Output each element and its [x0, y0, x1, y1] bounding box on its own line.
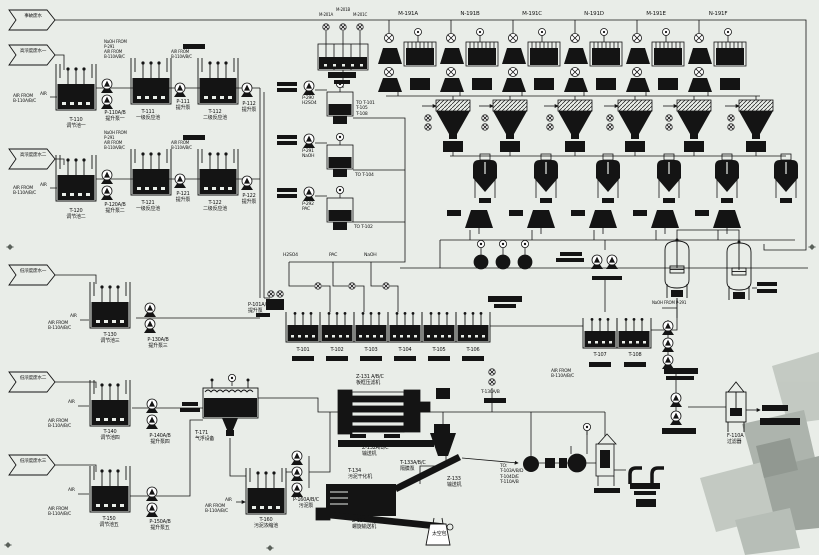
tank-t108-label: T-108 — [629, 353, 642, 359]
pump-p292-label: P-292 PAC — [302, 202, 314, 213]
pump-p160-label: P-160A/B/C 污泥泵 — [293, 498, 319, 510]
tank-t120-label: T-120 调节池二 — [66, 209, 85, 221]
pump-p291-label: P-291 NaOH — [302, 149, 314, 160]
mixer-m201b-label: M-201B — [336, 8, 350, 13]
pump-p122-label: P-122 提升泵 — [242, 194, 256, 206]
dest-t101-label: TO T-101 T-105 T-108 — [356, 101, 375, 117]
air-from-note: AIR FROM B-110A/B/C — [551, 369, 574, 379]
pfd-canvas: 事故废水高浓度废水一高浓度废水二低浓度废水一低浓度废水二低浓度废水三M-191A… — [0, 0, 819, 555]
mixer-m201c-label: M-201C — [353, 13, 367, 18]
tank-t112-label: T-112 二级反应池 — [203, 110, 227, 122]
chem-header-naoh: NaOH — [364, 253, 377, 258]
flag-low-conc-1: 低浓度废水一 — [20, 269, 46, 274]
tank-t101-label: T-101 — [297, 348, 310, 354]
dest-t102-label: TO T-102 — [354, 225, 373, 230]
pump-p150-label: P-150A/B 提升泵五 — [149, 520, 170, 532]
tank-t140-label: T-140 调节池四 — [100, 430, 119, 442]
tank-t102-label: T-102 — [331, 348, 344, 354]
flag-high-conc-2: 高浓度废水二 — [20, 153, 46, 158]
conveyor-z133-label: Z-133 输送机 — [447, 477, 461, 489]
recycle-dest-label: TO: T-103A/B/D T-104D/E T-110A/B — [500, 464, 523, 485]
dest-t104-label: TO T-104 — [355, 173, 374, 178]
tank-t103-label: T-103 — [365, 348, 378, 354]
conveyor-z134-label: Z-134 螺旋输送机 — [352, 519, 376, 531]
air-from-note: AIR FROM B-110A/B/C — [48, 321, 71, 331]
naoh-from-note: NaOH FROM P-291 — [652, 301, 686, 306]
air-tag: AIR — [68, 488, 75, 493]
unit-n191b-label: N-191B — [460, 11, 479, 17]
naoh-from-note: NaOH FROM P-291 — [104, 40, 127, 49]
dryer-t134-label: T-134 污泥干化机 — [348, 469, 372, 481]
flag-accident-wastewater: 事故废水 — [24, 14, 42, 19]
unit-m191e-label: M-191E — [646, 11, 666, 17]
flag-low-conc-2: 低浓度废水二 — [20, 376, 46, 381]
pump-p121-label: P-121 提升泵 — [176, 192, 190, 204]
air-from-note: AIR FROM B-110A/B/C — [48, 419, 71, 429]
tank-t104-label: T-104 — [399, 348, 412, 354]
pump-p111-label: P-111 提升泵 — [176, 100, 190, 112]
chem-header-h2so4: H2SO4 — [283, 253, 298, 258]
air-tag: AIR — [68, 400, 75, 405]
pump-p130-label: P-130A/B 提升泵三 — [147, 338, 168, 350]
pump-p140-label: P-140A/B 提升泵四 — [149, 434, 170, 446]
air-tag: AIR — [40, 92, 47, 97]
naoh-from-note: NaOH FROM P-291 — [104, 131, 127, 140]
pump-t130ab-label: T-130A/B — [481, 390, 500, 395]
air-from-note: AIR FROM B-110A/B/C — [171, 141, 192, 150]
tank-t106-label: T-106 — [467, 348, 480, 354]
unit-m191a-label: M-191A — [398, 11, 418, 17]
unit-n191d-label: N-191D — [584, 11, 604, 17]
pump-p120-label: P-120A/B 提升泵二 — [104, 203, 125, 215]
filter-f110a-label: F-110A 过滤器 — [727, 434, 743, 446]
air-tag: AIR — [40, 183, 47, 188]
pump-p101-label: P-101A/B 提升泵 — [248, 303, 269, 315]
unit-m191c-label: M-191C — [522, 11, 542, 17]
tank-t107-label: T-107 — [594, 353, 607, 359]
air-from-note: AIR FROM B-110A/B/C — [13, 94, 36, 104]
pump-p290-label: P-290 H2SO4 — [302, 96, 317, 107]
air-from-note: AIR FROM B-110A/B/C — [104, 141, 125, 150]
press-z131-label: Z-131 A/B/C 板框压滤机 — [356, 375, 384, 387]
flag-low-conc-3: 低浓度废水三 — [20, 459, 46, 464]
air-from-note: AIR FROM B-110A/B/C — [205, 504, 228, 514]
mixer-m201a-label: M-201A — [319, 13, 333, 18]
air-from-note: AIR FROM B-110A/B/C — [13, 186, 36, 196]
air-tag: AIR — [70, 314, 77, 319]
tank-t121-label: T-121 一级反应池 — [136, 201, 160, 213]
air-from-note: AIR FROM B-110A/B/C — [104, 50, 125, 59]
tank-t130-label: T-130 调节池三 — [100, 333, 119, 345]
labels-layer: 事故废水高浓度废水一高浓度废水二低浓度废水一低浓度废水二低浓度废水三M-191A… — [0, 0, 819, 555]
daf-t171-label: T-171 气浮设备 — [195, 431, 214, 443]
tank-t150-label: T-150 调节池五 — [99, 517, 118, 529]
air-from-note: AIR FROM B-110A/B/C — [171, 50, 192, 59]
bulk-bag-label: 太空包 — [432, 532, 446, 538]
tank-t110-label: T-110 调节池一 — [66, 118, 85, 130]
chem-header-pac: PAC — [329, 253, 337, 258]
unit-n191f-label: N-191F — [709, 11, 728, 17]
air-from-note: AIR FROM B-110A/B/C — [48, 507, 71, 517]
pump-t133-label: T-133A/B/C 隔膜泵 — [400, 461, 426, 473]
flag-high-conc-1: 高浓度废水一 — [20, 49, 46, 54]
pump-p112-label: P-112 提升泵 — [242, 102, 256, 114]
tank-t111-label: T-111 一级反应池 — [136, 110, 160, 122]
tank-t122-label: T-122 二级反应池 — [203, 201, 227, 213]
air-tag: AIR — [225, 498, 232, 503]
tank-t105-label: T-105 — [433, 348, 446, 354]
conveyor-z132-label: Z-132A/B/C 输送机 — [362, 446, 388, 458]
tank-t160-label: T-160 污泥浓缩池 — [254, 518, 278, 530]
pump-p110-label: P-110A/B 提升泵一 — [104, 111, 125, 123]
